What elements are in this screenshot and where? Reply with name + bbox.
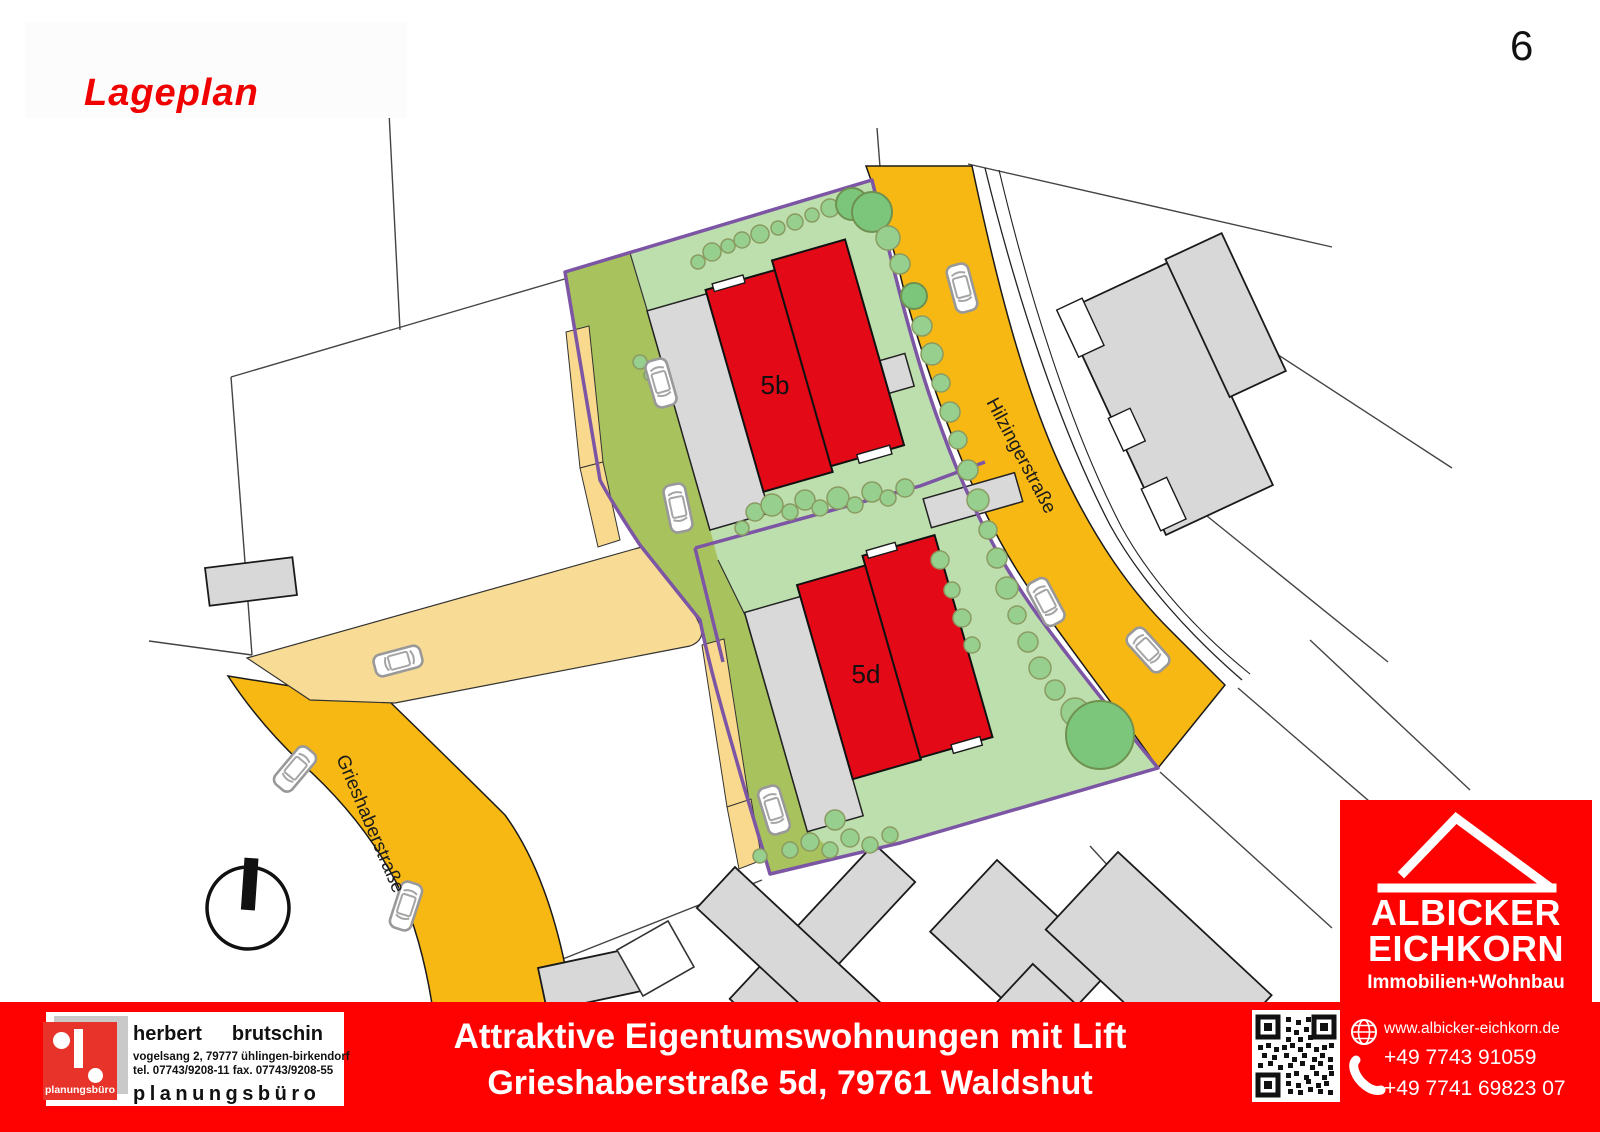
agency-logo: ALBICKER EICHKORN Immobilien+Wohnbau [1340,800,1592,1002]
contact-block: www.albicker-eichkorn.de +49 7743 91059 … [1384,1016,1566,1104]
neighbor-building-northeast [1057,233,1328,536]
agency-tagline: Immobilien+Wohnbau [1340,972,1592,994]
name-word1: herbert [133,1023,202,1046]
planungsbuero-brand: planungsbüro [133,1083,343,1106]
logo-caption: planungsbüro [43,1084,117,1096]
banner-subline: Grieshaberstraße 5d, 79761 Waldshut [350,1060,1230,1106]
banner-text: Attraktive Eigentumswohnungen mit Lift G… [350,1014,1230,1106]
planungsbuero-text: herbert brutschin vogelsang 2, 79777 ühl… [133,1023,343,1106]
phone-icon [1348,1054,1388,1096]
name-word2: brutschin [232,1023,323,1046]
exposé-page: Hilzingerstraße Grieshaberstraße 5b 5d L… [0,0,1600,1132]
grieshaberstrasse-road [228,676,572,1004]
banner-headline: Attraktive Eigentumswohnungen mit Lift [350,1014,1230,1060]
building-label-5d: 5d [852,659,881,689]
planungsbuero-address: vogelsang 2, 79777 ühlingen-birkendorf [133,1051,343,1063]
footer-banner: planungsbüro herbert brutschin vogelsang… [0,1002,1600,1132]
page-number: 6 [1510,22,1533,70]
planungsbuero-phone: tel. 07743/9208-11 fax. 07743/9208-55 [133,1065,343,1077]
planungsbuero-logo: planungsbüro [43,1022,117,1100]
neighbor-building-west [205,557,297,605]
logo-dot [88,1068,103,1083]
north-arrow-icon [207,858,289,949]
phone2-text: +49 7741 69823 07 [1384,1073,1566,1104]
logo-bar [74,1029,83,1068]
access-road [247,547,702,704]
building-label-5b: 5b [761,370,790,400]
logo-circle [53,1032,70,1049]
website-text: www.albicker-eichkorn.de [1384,1016,1566,1042]
planungsbuero-card: planungsbüro herbert brutschin vogelsang… [46,1012,344,1106]
planungsbuero-name: herbert brutschin [133,1023,323,1046]
globe-icon [1350,1018,1378,1046]
page-title: Lageplan [84,72,259,115]
phone1-text: +49 7743 91059 [1384,1042,1566,1073]
qr-code [1252,1010,1340,1102]
agency-name-line2: EICHKORN [1340,932,1592,966]
agency-name-line1: ALBICKER [1340,896,1592,930]
